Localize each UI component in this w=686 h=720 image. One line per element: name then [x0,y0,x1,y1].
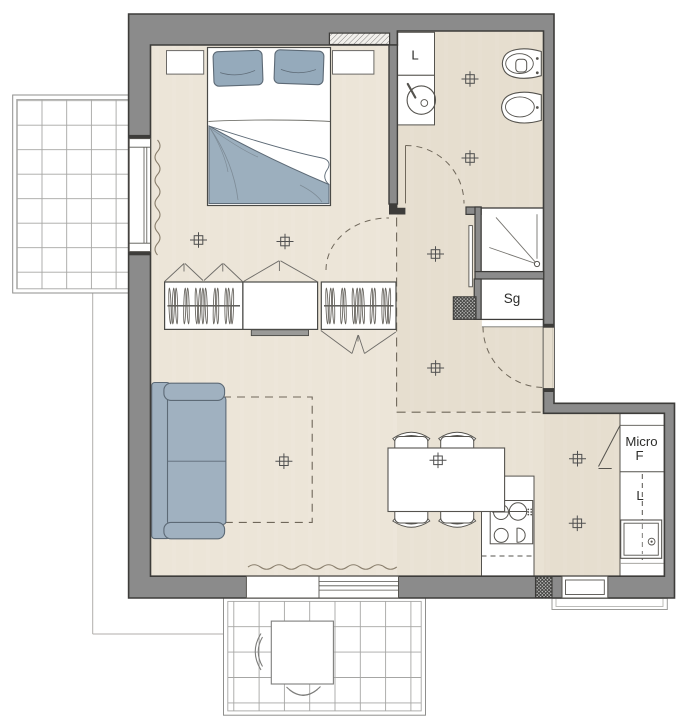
svg-text:Micro: Micro [625,434,657,449]
svg-text:F: F [635,448,643,463]
svg-text:L: L [636,488,643,503]
svg-text:L: L [411,48,418,63]
svg-text:Sg: Sg [504,291,521,306]
